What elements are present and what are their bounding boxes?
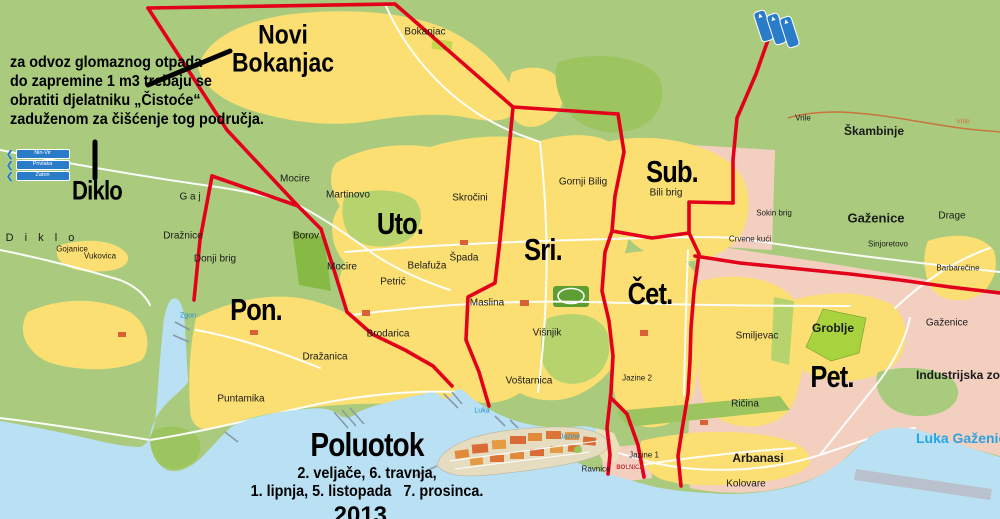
roadsign-label: Zaton [16,171,70,181]
roadsign-privlaka: ❮ Privlaka [6,160,70,170]
left-arrow-icon: ❮ [6,172,14,181]
left-arrow-icon: ❮ [6,150,14,159]
roadsign-label: Privlaka [16,160,70,170]
up-arrow-icon: ▲ [756,12,765,21]
poluotok-schedule: Poluotok 2. veljače, 6. travnja, 1. lipn… [238,428,497,519]
roadsign-nin-vir: ❮ Nin-Vir [6,149,70,159]
roadsign-zaton: ❮ Zaton [6,171,70,181]
poluotok-title: Poluotok [257,428,477,461]
up-arrow-icon: ▲ [782,18,791,27]
waste-notice-text: za odvoz glomaznog otpada do zapremine 1… [10,54,264,130]
roadsign-label: Nin-Vir [16,149,70,159]
zadar-zone-map: za odvoz glomaznog otpada do zapremine 1… [0,0,1000,519]
up-arrow-icon: ▲ [769,15,778,24]
poluotok-dates: 2. veljače, 6. travnja, 1. lipnja, 5. li… [251,465,484,500]
left-arrow-icon: ❮ [6,161,14,170]
poluotok-year: 2013 . [238,502,497,519]
